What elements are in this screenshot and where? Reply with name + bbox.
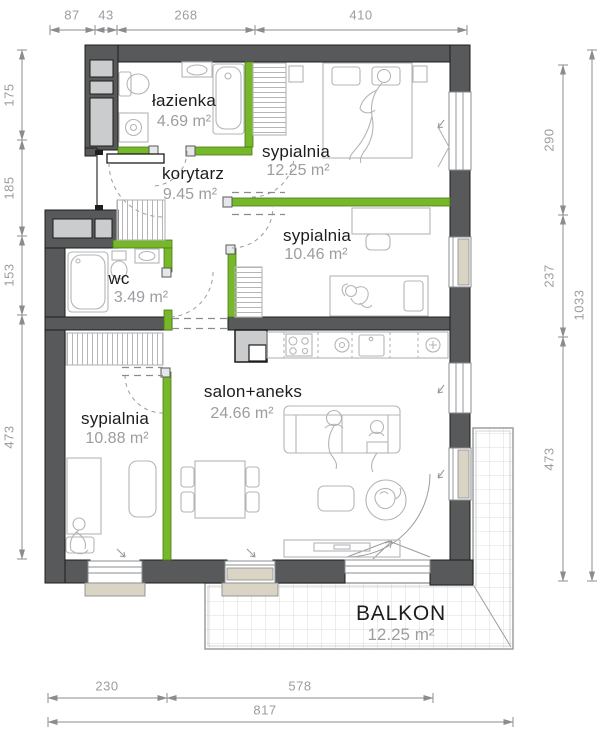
dim-right-237: 237 [542, 264, 557, 287]
room-label-salon-area: 24.66 m² [210, 405, 273, 423]
dim-top-87: 87 [64, 8, 79, 23]
person-at-desk [70, 518, 88, 554]
person-on-sofa-1 [325, 411, 343, 470]
room-label-wc-area: 3.49 m² [114, 289, 168, 307]
dog-bed [366, 480, 406, 520]
dining-set [181, 461, 259, 518]
dressing-table [67, 458, 101, 534]
bedroom2-door-swing [232, 207, 273, 248]
laptop [367, 442, 388, 453]
dim-bottom-230: 230 [95, 679, 118, 694]
wardrobe-2 [235, 267, 262, 317]
balcony-door-swing [347, 474, 430, 559]
dim-bottom-817: 817 [253, 703, 276, 718]
dim-right-473: 473 [542, 447, 557, 470]
room-label-balkon-name: BALKON [356, 602, 446, 626]
room-label-sypialnia1-area: 12.25 m² [266, 162, 329, 180]
room-label-sypialnia3-name: sypialnia [81, 409, 149, 429]
person-on-bed [350, 70, 391, 164]
dim-left-473: 473 [2, 425, 17, 448]
dim-right-290: 290 [542, 128, 557, 151]
room-label-sypialnia2-name: sypialnia [283, 226, 351, 246]
curtain-mark [438, 127, 449, 167]
desk [352, 208, 430, 234]
window-bottom-1 [85, 561, 145, 596]
dim-left-185: 185 [2, 176, 17, 199]
room-label-sypialnia3-area: 10.88 m² [85, 430, 148, 448]
room-label-korytarz-name: korytarz [162, 164, 224, 184]
room-label-salon-name: salon+aneks [204, 382, 302, 402]
room-label-balkon-area: 12.25 m² [367, 625, 434, 645]
room-label-sypialnia1-name: sypialnia [262, 142, 330, 162]
dim-top-410: 410 [349, 8, 372, 23]
dim-left-175: 175 [2, 83, 17, 106]
entrance-door-leaf[interactable] [107, 154, 164, 163]
window-right-1 [449, 92, 471, 170]
window-right-2 [449, 237, 471, 287]
dim-left-153: 153 [2, 263, 17, 286]
wardrobe-1 [253, 63, 286, 135]
coffee-table [318, 486, 354, 511]
child-on-bed [342, 284, 372, 307]
room-label-sypialnia2-area: 10.46 m² [284, 246, 347, 264]
room-label-korytarz-area: 9.45 m² [163, 186, 217, 204]
bedroom3-door-swing [125, 375, 163, 413]
dim-top-268: 268 [174, 8, 197, 23]
balcony-door-threshold [345, 560, 430, 573]
washing-machine [119, 113, 148, 142]
room-label-wc-name: wc [108, 269, 129, 289]
bathtub [213, 64, 244, 134]
double-bed [323, 63, 412, 158]
dim-top-43: 43 [98, 8, 113, 23]
floor-plan-drawing [0, 0, 600, 732]
dim-right-1033: 1033 [572, 290, 587, 321]
armchair [129, 461, 156, 517]
kitchen-shaft [235, 330, 267, 362]
furniture [66, 62, 449, 557]
window-right-4 [449, 448, 471, 500]
kitchen-sink [359, 335, 384, 356]
window-bottom-2 [222, 561, 278, 596]
window-right-3 [449, 363, 471, 413]
corridor-closet [117, 200, 165, 240]
floor-plan-page: łazienka 4.69 m² korytarz 9.45 m² sypial… [0, 0, 600, 732]
shower [68, 252, 108, 312]
person-on-sofa-2 [367, 421, 388, 473]
wardrobe-3 [66, 333, 163, 365]
room-label-lazienka-name: łazienka [152, 91, 216, 111]
wc-door-swing [168, 272, 213, 317]
dining-table [195, 461, 245, 518]
kitchen-counter [267, 332, 448, 358]
corridor-salon-opening [172, 319, 228, 329]
sofa-group [284, 406, 406, 557]
tv [314, 543, 370, 551]
sliding-door-marks-2 [122, 368, 163, 376]
dim-bottom-578: 578 [288, 679, 311, 694]
room-label-lazienka-area: 4.69 m² [157, 113, 211, 131]
